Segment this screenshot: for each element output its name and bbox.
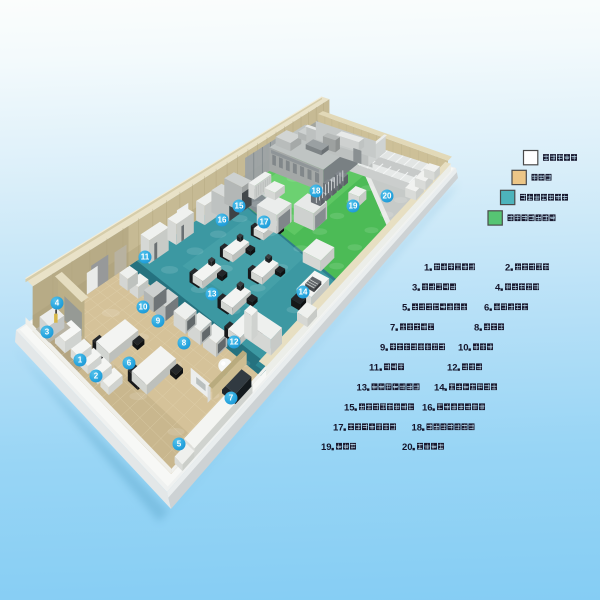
svg-text:16: 16 xyxy=(422,402,433,413)
svg-text:7: 7 xyxy=(390,322,395,333)
svg-text:18: 18 xyxy=(412,422,423,433)
svg-text:14: 14 xyxy=(434,382,445,393)
svg-text:10: 10 xyxy=(458,342,469,353)
svg-text:4: 4 xyxy=(495,282,501,293)
svg-text:6: 6 xyxy=(484,302,489,313)
svg-text:9: 9 xyxy=(380,342,385,353)
svg-text:3: 3 xyxy=(412,282,417,293)
svg-text:13: 13 xyxy=(357,382,368,393)
svg-text:20: 20 xyxy=(402,442,413,453)
svg-text:17: 17 xyxy=(333,422,344,433)
svg-text:15: 15 xyxy=(344,402,355,413)
svg-text:5: 5 xyxy=(402,302,408,313)
svg-text:12: 12 xyxy=(447,362,458,373)
svg-text:19: 19 xyxy=(321,442,332,453)
svg-text:8: 8 xyxy=(474,322,479,333)
svg-text:11: 11 xyxy=(369,362,380,373)
svg-text:2: 2 xyxy=(505,262,510,273)
svg-text:1: 1 xyxy=(424,262,430,273)
